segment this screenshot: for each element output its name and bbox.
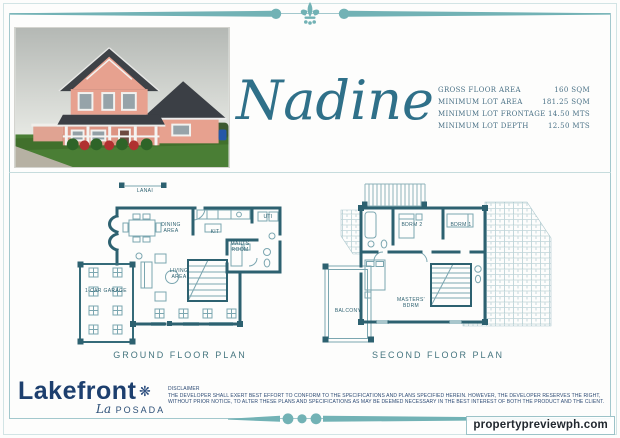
ground-floor-plan: LANAI DINING AREA KIT UTI MAID'S ROOM LI…: [55, 176, 305, 372]
room-label-utility: UTI: [253, 215, 283, 221]
room-label-balcony: BALCONY: [327, 309, 369, 315]
room-label-bdrm1: BDRM 1: [444, 223, 478, 229]
room-label-living: LIVING AREA: [167, 269, 191, 280]
house-photo: [14, 27, 230, 168]
disclaimer-heading: DISCLAIMER: [168, 386, 610, 392]
room-label-lanai: LANAI: [125, 189, 165, 195]
second-floor-plan: BDRM 2 BDRM 1 MASTERS' BDRM BALCONY SECO…: [313, 176, 563, 372]
room-label-garage: 1-CAR GARAGE: [76, 289, 136, 295]
spec-label: MINIMUM LOT AREA: [438, 96, 523, 108]
header-divider: [9, 172, 611, 173]
disclaimer-line2: WITHOUT PRIOR NOTICE, TO ALTER THESE PLA…: [168, 399, 610, 405]
spec-value: 160 SQM: [554, 84, 590, 96]
spec-label: MINIMUM LOT DEPTH: [438, 120, 529, 132]
spec-value: 12.50 MTS: [548, 120, 590, 132]
sub-brand-script: La: [96, 402, 111, 416]
spec-row: MINIMUM LOT AREA 181.25 SQM: [438, 96, 590, 108]
sub-brand: La POSADA: [96, 400, 166, 418]
second-floor-plan-caption: SECOND FLOOR PLAN: [338, 350, 538, 360]
disclaimer-line1: THE DEVELOPER SHALL EXERT BEST EFFORT TO…: [168, 393, 610, 399]
spec-value: 181.25 SQM: [542, 96, 590, 108]
spec-label: MINIMUM LOT FRONTAGE: [438, 108, 546, 120]
model-name: Nadine: [230, 56, 440, 146]
specs-table: GROSS FLOOR AREA 160 SQM MINIMUM LOT ARE…: [438, 84, 590, 132]
spec-row: MINIMUM LOT DEPTH 12.50 MTS: [438, 120, 590, 132]
spec-row: MINIMUM LOT FRONTAGE 14.50 MTS: [438, 108, 590, 120]
spec-row: GROSS FLOOR AREA 160 SQM: [438, 84, 590, 96]
brochure-page: Nadine GROSS FLOOR AREA 160 SQM MINIMUM …: [0, 0, 620, 438]
disclaimer: DISCLAIMER THE DEVELOPER SHALL EXERT BES…: [168, 386, 610, 405]
room-label-maids-room: MAID'S ROOM: [227, 242, 253, 253]
spec-value: 14.50 MTS: [548, 108, 590, 120]
fleur-de-lis-icon: [0, 0, 620, 30]
room-label-masters-bdrm: MASTERS' BDRM: [390, 298, 432, 309]
room-label-kitchen: KIT: [200, 230, 230, 236]
flower-icon: ❋: [139, 383, 151, 400]
sub-brand-caps: POSADA: [116, 405, 166, 415]
ground-floor-plan-caption: GROUND FLOOR PLAN: [80, 350, 280, 360]
watermark: propertypreviewph.com: [466, 416, 615, 435]
spec-label: GROSS FLOOR AREA: [438, 84, 521, 96]
room-label-dining: DINING AREA: [159, 223, 183, 234]
room-label-bdrm2: BDRM 2: [395, 223, 429, 229]
